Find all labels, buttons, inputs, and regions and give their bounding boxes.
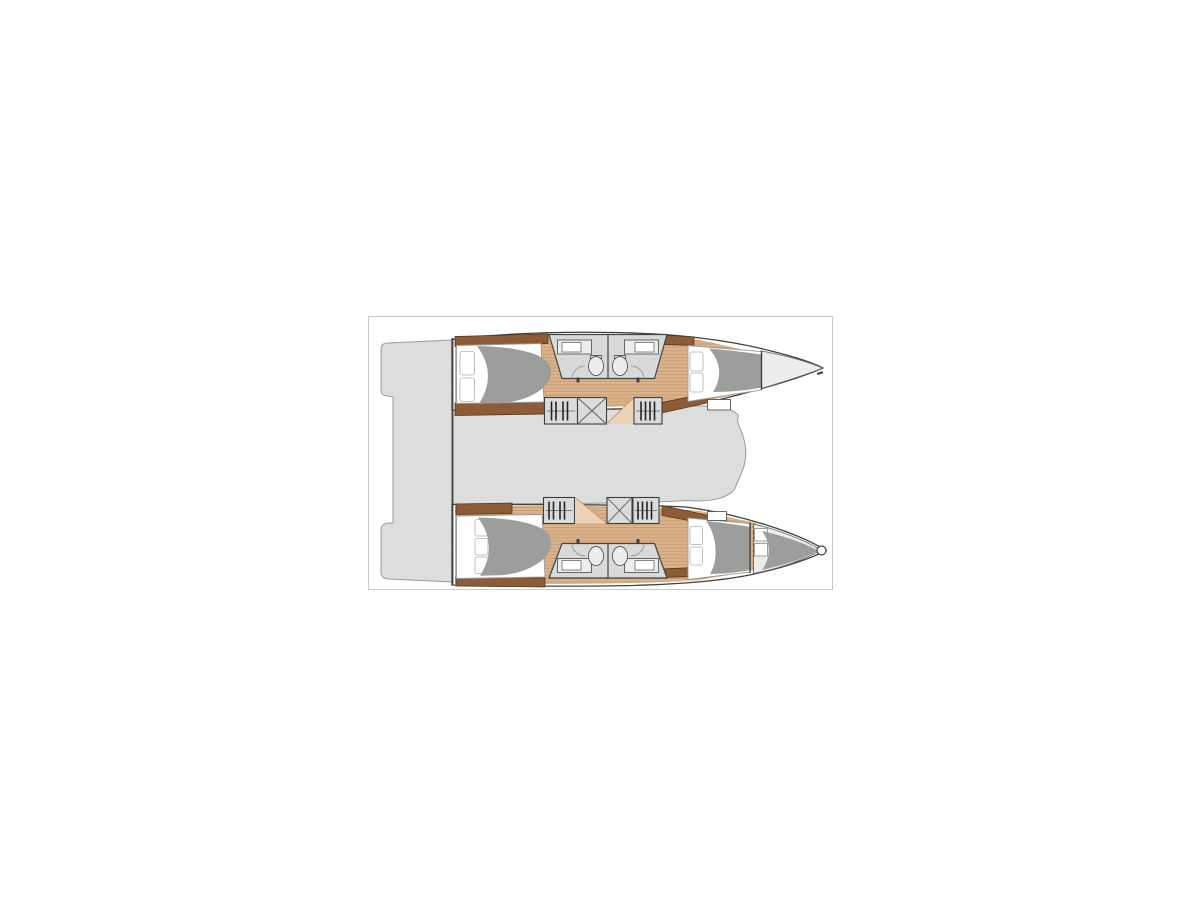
catamaran-layout-plan bbox=[0, 0, 1200, 900]
step bbox=[708, 512, 727, 521]
starboard-hull bbox=[452, 498, 827, 588]
toilet bbox=[613, 547, 628, 566]
pillow bbox=[690, 547, 703, 565]
bow-fitting bbox=[817, 371, 823, 375]
port-forward-cabin bbox=[688, 346, 823, 411]
door-hinge bbox=[637, 539, 640, 544]
toilet bbox=[613, 357, 628, 376]
door-hinge bbox=[577, 378, 580, 383]
sink-basin bbox=[635, 561, 654, 571]
stern-platform bbox=[381, 340, 452, 582]
door-hinge bbox=[637, 378, 640, 383]
port-hull bbox=[452, 332, 823, 424]
sink-basin bbox=[562, 343, 581, 353]
stbd-bathrooms bbox=[549, 539, 667, 578]
toilet bbox=[589, 547, 604, 566]
stbd-aft-cabinet-top bbox=[456, 503, 512, 515]
step bbox=[708, 400, 731, 411]
pillow bbox=[690, 352, 703, 371]
port-bathrooms bbox=[549, 335, 667, 383]
pillow bbox=[460, 352, 475, 376]
pillow bbox=[475, 539, 488, 556]
sink-basin bbox=[562, 561, 581, 571]
toilet bbox=[589, 357, 604, 376]
door-hinge bbox=[577, 539, 580, 544]
page: { "page": { "background": "#ffffff" }, "… bbox=[0, 0, 1200, 900]
stbd-aft-cabin-bed bbox=[457, 515, 552, 579]
forepeak-shelves bbox=[755, 544, 768, 557]
pillow bbox=[460, 378, 475, 402]
sink-basin bbox=[635, 343, 654, 353]
port-aft-cabin-bed bbox=[457, 344, 552, 404]
bow-roller bbox=[817, 546, 826, 555]
port-lockers-row bbox=[545, 398, 663, 425]
pillow bbox=[690, 373, 703, 392]
pillow bbox=[690, 527, 703, 545]
